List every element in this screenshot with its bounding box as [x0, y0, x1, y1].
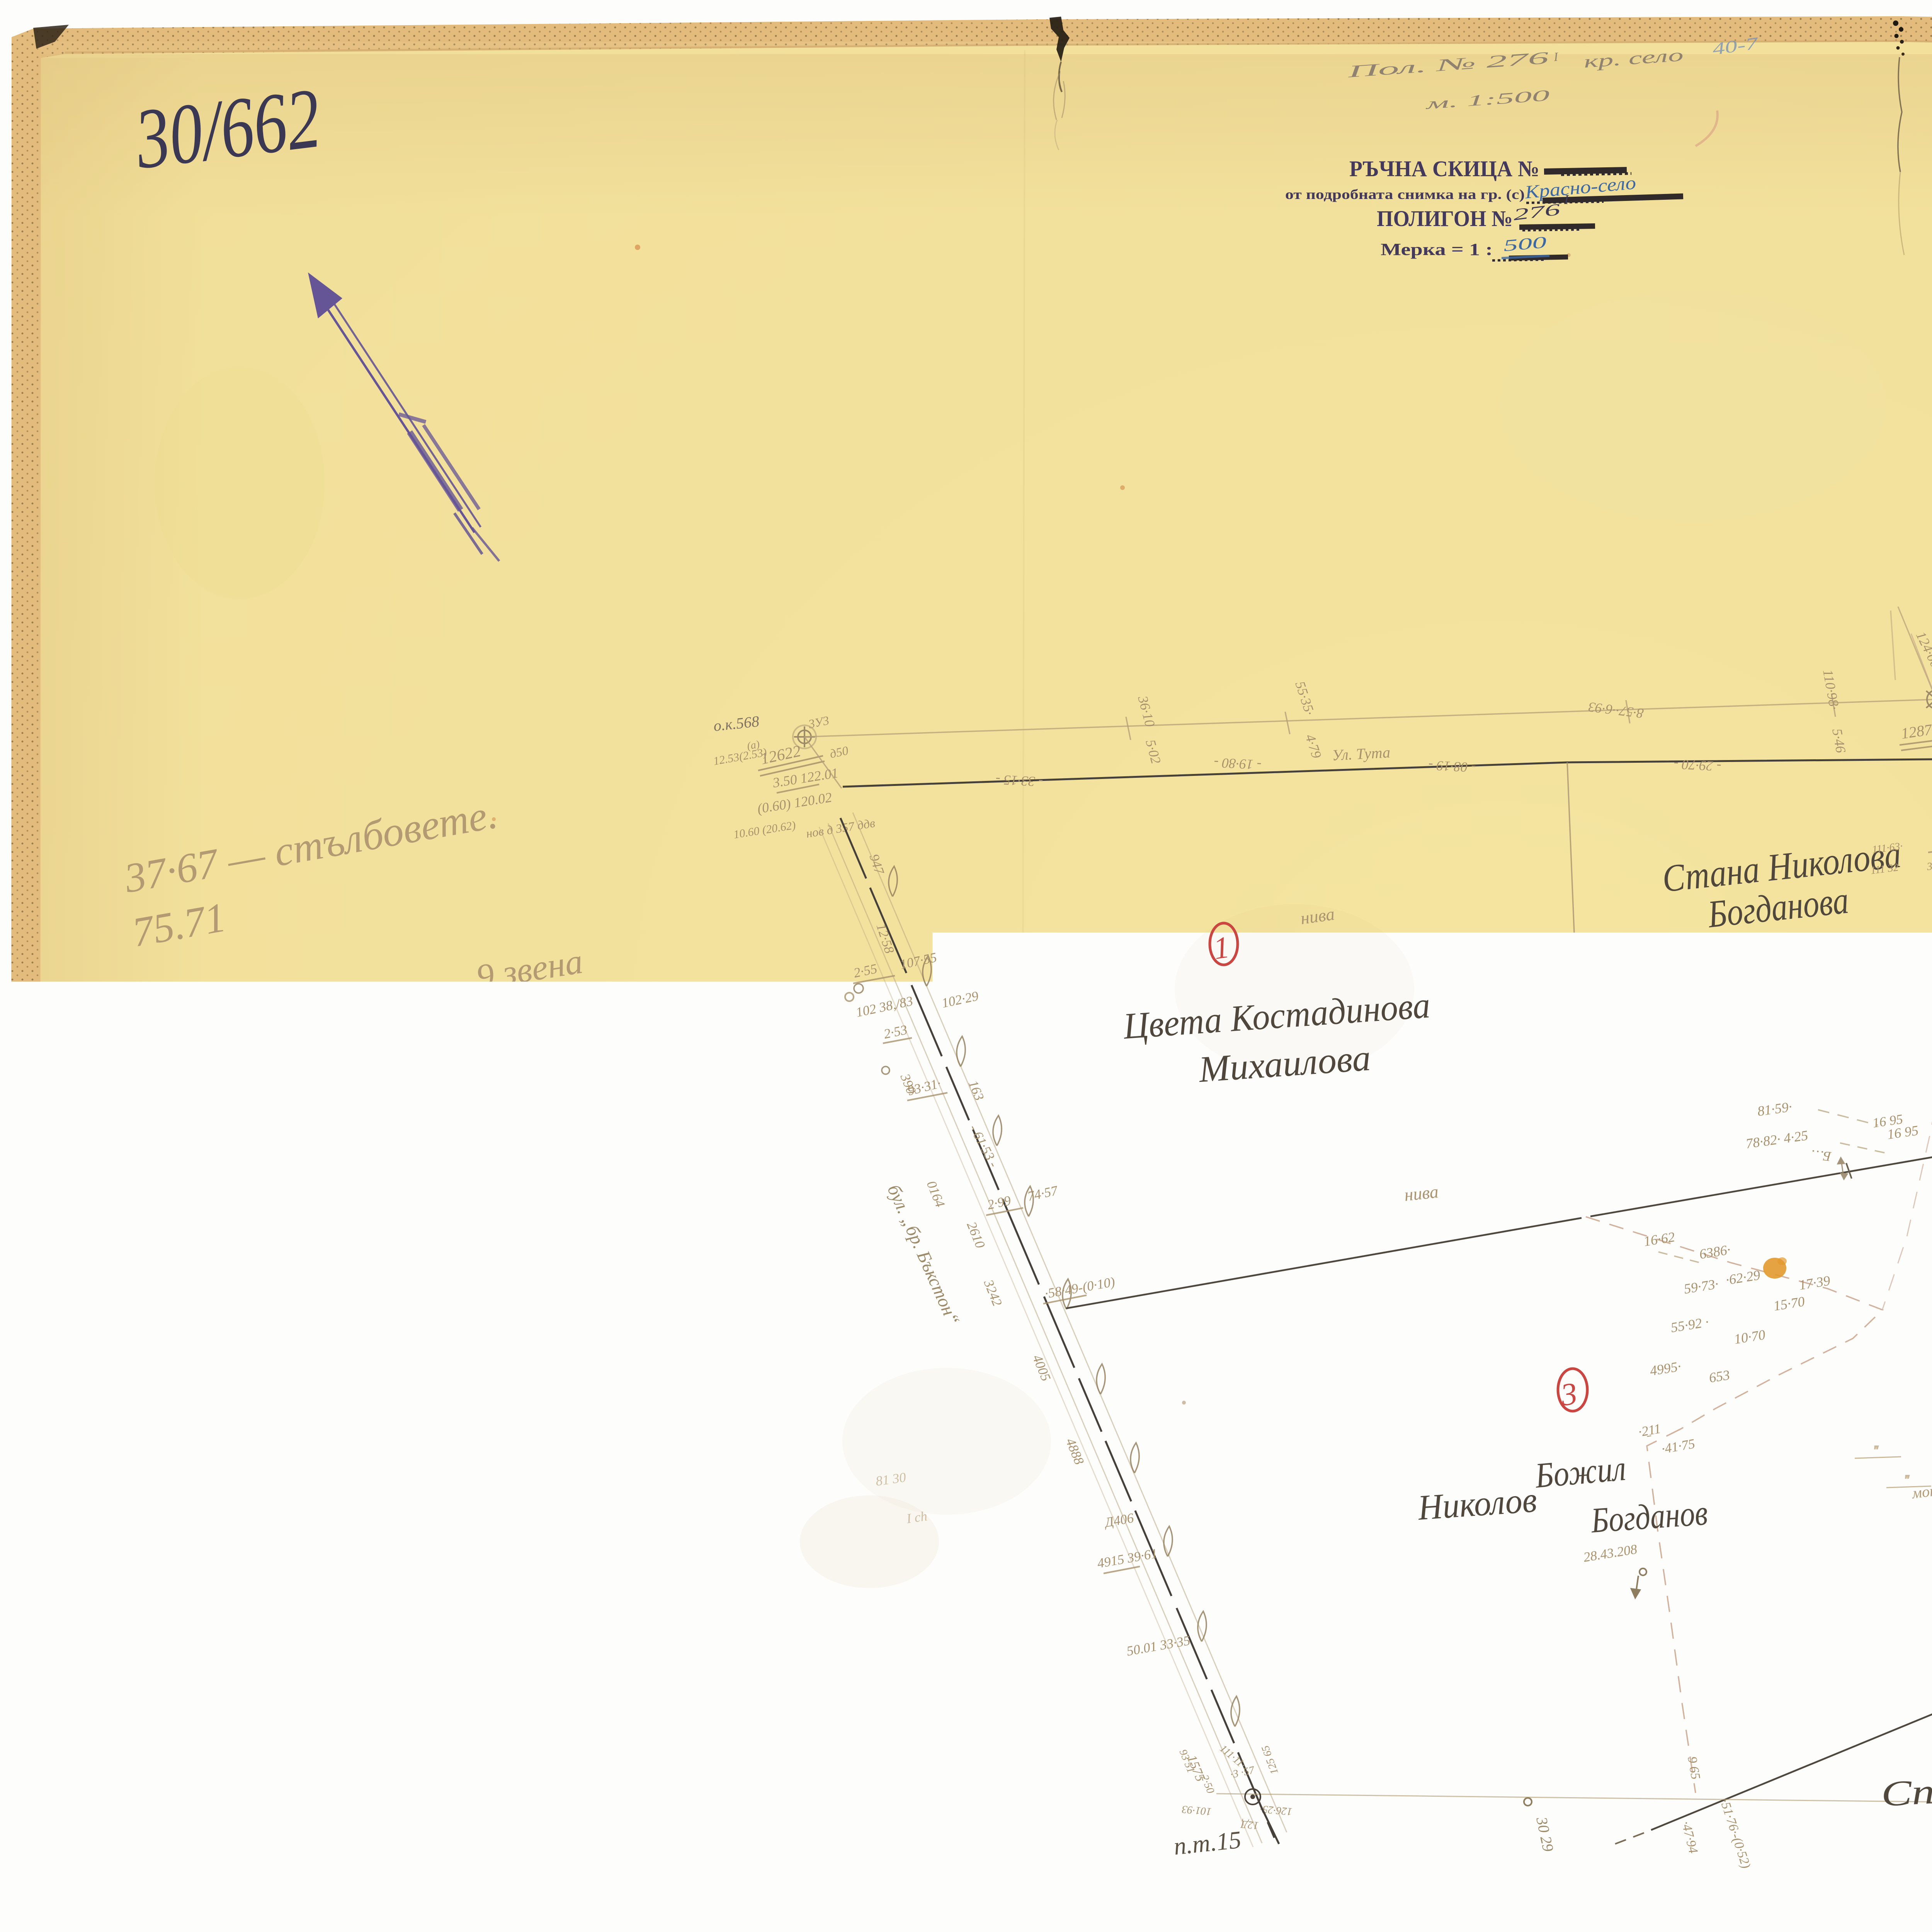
svg-text:": " [1873, 1444, 1878, 1456]
svg-text:500: 500 [1503, 233, 1548, 255]
svg-text:ПОЛИГОН №: ПОЛИГОН № [1377, 206, 1513, 231]
svg-text:- 49·25 -: - 49·25 - [1571, 960, 1589, 1010]
svg-text:‵3·12: ‵3·12 [609, 1882, 642, 1900]
svg-text:Ул. Тута: Ул. Тута [1332, 743, 1391, 764]
svg-text:Брой на дворовете: Брой на дворовете [292, 1855, 427, 1873]
svg-text:от подробната снимка на гр. (с: от подробната снимка на гр. (с) [1285, 187, 1525, 202]
svg-text:653: 653 [1708, 1367, 1731, 1386]
svg-text:0·47: 0·47 [643, 1877, 681, 1901]
svg-text:РЪЧНА СКИЦА №: РЪЧНА СКИЦА № [1349, 156, 1539, 181]
svg-text:2: 2 [256, 1881, 265, 1901]
svg-text:": " [1904, 1473, 1909, 1486]
svg-text:- 29·70 -: - 29·70 - [1673, 757, 1722, 774]
svg-text:Николов: Николов [1416, 1480, 1538, 1527]
svg-text:/о: /о [657, 1834, 667, 1848]
svg-text:I ch: I ch [905, 1509, 928, 1526]
svg-text:нено: нено [558, 1836, 580, 1848]
svg-text:норма: норма [600, 1828, 638, 1845]
svg-text:Мерка = 1 :: Мерка = 1 : [1381, 240, 1493, 259]
svg-text:Квадратура на полигона: Квадратура на полигона [292, 1882, 459, 1899]
svg-text:3: 3 [256, 1907, 265, 1927]
svg-text:Б…: Б… [1810, 1147, 1832, 1164]
svg-text:14,690: 14,690 [541, 1875, 604, 1903]
svg-text:Богданов: Богданов [1589, 1493, 1709, 1540]
svg-text:- 08·19 -: - 08·19 - [1428, 758, 1476, 776]
svg-text:12Д: 12Д [1240, 1818, 1259, 1832]
svg-text:Божил: Божил [1533, 1448, 1628, 1495]
svg-text:Квадратура на постройките: Квадратура на постройките [292, 1908, 483, 1925]
svg-text:1: 1 [258, 1854, 267, 1874]
svg-text:изпъл-: изпъл- [556, 1824, 586, 1836]
svg-text:нива: нива [1403, 1182, 1439, 1205]
svg-text:- 33·15 -: - 33·15 - [995, 772, 1044, 790]
svg-text:- 19·80 -: - 19·80 - [1214, 755, 1262, 773]
